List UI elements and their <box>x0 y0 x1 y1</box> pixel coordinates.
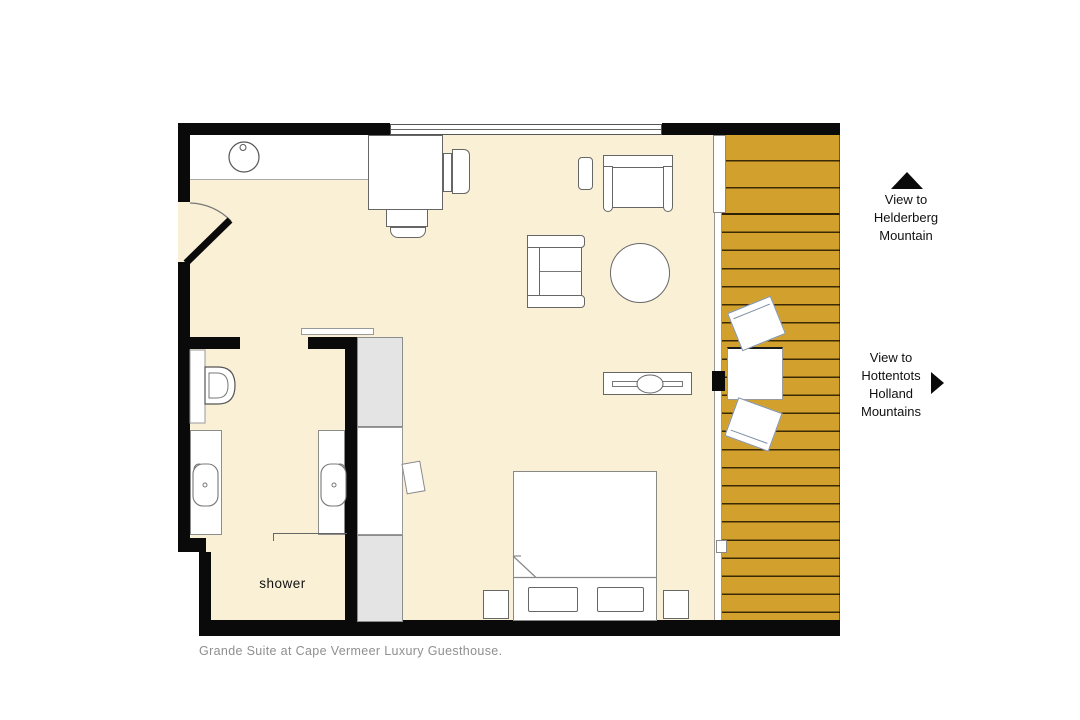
view-helderberg-label: View to Helderberg Mountain <box>846 191 966 245</box>
shower-label: shower <box>240 575 325 593</box>
bed-linen <box>513 556 657 578</box>
kitchenette-basin <box>229 142 259 172</box>
right-arrow-icon <box>931 372 944 394</box>
sink-right <box>321 464 346 506</box>
caption: Grande Suite at Cape Vermeer Luxury Gues… <box>199 644 502 658</box>
view-hottentots-line1: View to <box>831 349 951 367</box>
tv-console-dish <box>637 375 663 393</box>
toilet <box>190 350 235 423</box>
view-helderberg-line2: Helderberg <box>846 209 966 227</box>
floor-plan: shower View to Helderberg Mountain View … <box>0 0 1080 720</box>
view-helderberg-line1: View to <box>846 191 966 209</box>
up-arrow-icon <box>891 172 923 189</box>
view-hottentots-line4: Mountains <box>831 403 951 421</box>
sink-left <box>193 464 218 506</box>
entry-door <box>186 203 231 263</box>
view-helderberg-line3: Mountain <box>846 227 966 245</box>
